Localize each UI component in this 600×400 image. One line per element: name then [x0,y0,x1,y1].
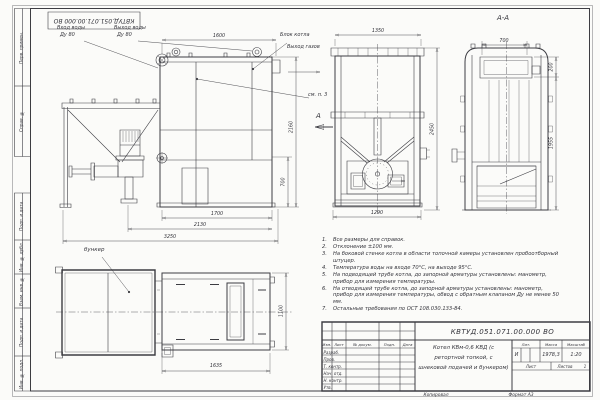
title-name-line3: шнековой подачей и бункером) [415,363,512,373]
label-boiler-block: Блок котла [280,33,310,39]
dim-3250-side: 3250 [164,235,176,240]
tb-row-tkontr: Т. контр. [324,364,343,369]
tb-sheets-header: Листов [558,364,573,369]
dim-2130-side: 2130 [194,223,206,228]
dim-700-side: 700 [281,177,286,186]
tb-scale-header: Масштаб [567,342,585,347]
dim-1350: 1350 [372,29,384,34]
note-3: 3.На боковой стенке котла в области топо… [322,251,560,264]
section-cut-letter: А [316,113,321,121]
note-4: 4.Температура воды на входе 70°С, на вых… [322,265,560,272]
label-see-note-3: см. п. 3 [308,93,327,99]
title-doc-number: КВТУД.051.071.00.000 ВО [415,324,590,340]
dim-200-section: 200 [549,62,554,71]
section-view-title: А-А [497,15,509,23]
label-water-outlet-dn: Ду 80 [117,33,132,39]
dim-1290-front: 1290 [371,211,383,216]
tb-row-utv: Утв. [324,385,332,390]
margin-label-sprav-no: Справ. № [14,86,30,156]
note-2: 2.Отклонение ±100 мм. [322,244,560,251]
tb-lit-value: И [515,352,519,358]
tb-scale-value: 1:20 [570,352,581,358]
note-6: 6.На отводящей трубе котла, до запорной … [322,286,560,306]
margin-label-inv-podl: Инв. № подл. [14,356,30,391]
dim-1100-plan: 1100 [279,305,284,317]
tb-row-nachotd: Нач. отд. [324,371,343,376]
tb-row-nkontr: Н. контр. [324,378,343,383]
tb-sheet-header: Лист [526,364,536,369]
footer-format: Формат А3 [508,393,533,398]
dim-1700-side: 1700 [211,212,223,217]
note-7: 7.Остальные требования по ОСТ 108.030.13… [322,306,560,313]
label-water-inlet: Вход воды [57,26,85,32]
dim-1600: 1600 [213,34,225,39]
label-water-inlet-dn: Ду 80 [60,33,75,39]
drawing-sheet: { "page": { "stamp_number": "КВТУД.051.0… [0,0,600,400]
margin-label-vzam-inv: Взам. инв. № [14,274,30,308]
margin-label-podp-data-1: Подп. и дата [14,193,30,240]
drawing-linework [0,0,600,400]
tb-lit-header: Лит. [522,342,531,347]
label-gas-outlet: Выход газов [287,45,320,51]
sheet: КВТУД.051.071.00.000 ВО Перв. примен. Сп… [0,0,600,400]
margin-label-inv-dubl: Инв. № дубл. [14,240,30,274]
leader-lines [84,41,333,293]
view-front [331,44,430,214]
label-bunker: бункер [84,247,104,253]
view-side [60,48,280,208]
dim-1635-plan: 1635 [210,364,222,369]
tb-mass-header: Масса [545,342,557,347]
label-water-outlet: Выход воды [114,26,146,32]
note-5: 5.На подводящей трубе котла, до запорной… [322,272,560,285]
margin-label-perv-primen: Перв. примен. [14,9,30,86]
tb-col-izm: Изм. [323,342,332,347]
dim-2160-side: 2160 [289,121,294,133]
title-name-line2: ретортной топкой, с [415,353,512,363]
tb-col-list: Лист [334,342,344,347]
margin-label-podp-data-2: Подп. и дата [14,308,30,356]
tb-mass-value: 1978,3 [542,352,560,358]
tb-sheets-value: 1 [584,364,587,369]
view-plan [56,267,293,358]
dim-700-section: 700 [499,39,508,44]
dim-1955-section: 1955 [549,137,554,149]
note-1: 1.Все размеры для справок. [322,237,560,244]
view-section [452,42,553,214]
technical-notes: 1.Все размеры для справок. 2.Отклонение … [322,237,560,313]
footer-copied-by: Копировал [423,393,448,398]
dim-2450-front: 2450 [430,123,435,135]
title-name-line1: Котел КВм-0,6 КВД (с [415,343,512,353]
tb-row-razrab: Разраб. [324,350,340,355]
tb-col-podp: Подп. [384,342,396,347]
title-name: Котел КВм-0,6 КВД (с ретортной топкой, с… [415,343,512,373]
tb-col-data: Дата [403,342,413,347]
tb-row-prov: Пров. [324,357,336,362]
tb-col-docnum: № докум. [353,342,372,347]
